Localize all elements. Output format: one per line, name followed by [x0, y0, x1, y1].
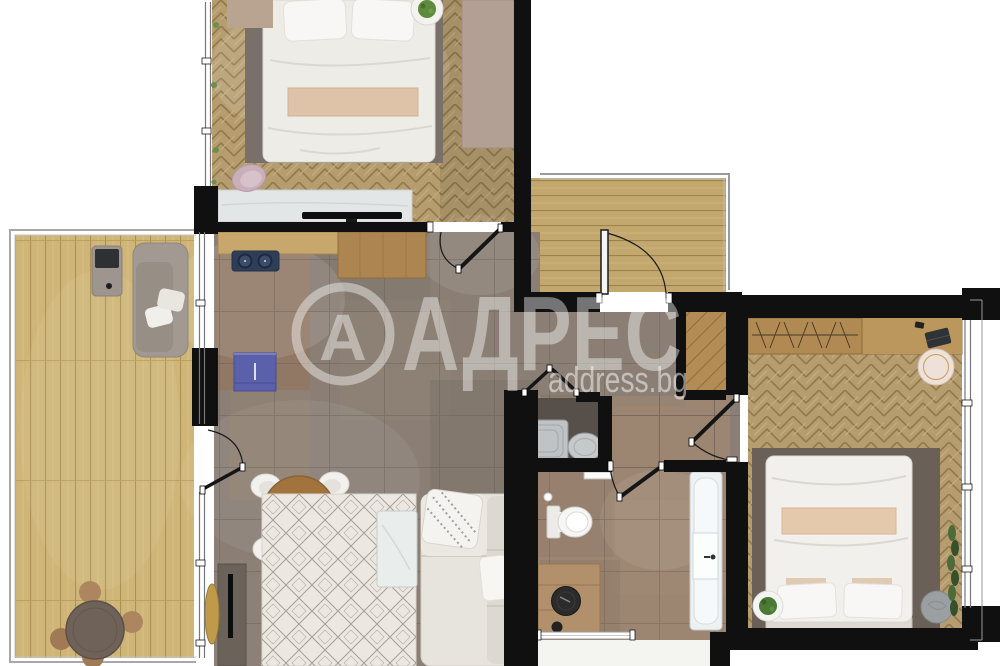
wall [684, 390, 726, 400]
bed-runner [288, 88, 418, 116]
terrace-sofa [133, 243, 188, 357]
bedroom1-dresser [218, 190, 412, 222]
floor-plan-image: А АДРЕС address.bg [0, 0, 1000, 666]
bedroom2-wardrobe-desk [748, 318, 962, 354]
sofa [421, 488, 513, 666]
pillow [351, 0, 415, 42]
coffee-table [377, 511, 417, 587]
wall [740, 295, 962, 318]
wall [515, 458, 605, 472]
bedroom2-bed [766, 456, 912, 632]
wall [962, 288, 1000, 320]
vanity-counter [538, 564, 600, 636]
black-vessel-sink [552, 587, 581, 616]
pillow [777, 583, 837, 620]
faucet-icon [711, 555, 716, 560]
desk-stool [918, 349, 954, 385]
wall [726, 628, 978, 650]
bedroom1-window-wall [202, 2, 211, 186]
kitchen-island [338, 232, 426, 278]
bedroom1-bed [263, 0, 435, 162]
toiletry-bottle [544, 493, 552, 501]
wall [504, 390, 538, 666]
wall [664, 460, 726, 472]
boiler [568, 433, 602, 461]
wall [196, 222, 430, 232]
accessory-jar [552, 622, 563, 633]
bedroom1-headboard-cabinet [227, 0, 273, 28]
tv-icon [228, 574, 233, 638]
terrace-side-table [92, 246, 122, 296]
brand-logo-letter: А [319, 300, 367, 374]
potted-plant [753, 591, 783, 621]
wall [710, 632, 730, 666]
blue-cabinet [234, 353, 276, 391]
bedroom2-window-wall [962, 300, 982, 640]
throw-blanket [421, 488, 484, 549]
wall [194, 186, 218, 234]
laptop-icon [95, 249, 119, 268]
cooktop [232, 251, 279, 271]
bed-runner [782, 508, 896, 534]
hall-closet-floor [684, 312, 726, 396]
pouf [921, 591, 953, 623]
wall [726, 462, 748, 632]
bedroom1-wardrobe [462, 0, 514, 148]
tv-console [218, 564, 246, 666]
shower-tray [538, 640, 710, 666]
wall [514, 0, 531, 312]
toilet [547, 506, 592, 538]
terrace-chair [79, 581, 101, 603]
bathtub [690, 472, 722, 630]
terrace-round-table [66, 601, 124, 659]
pillow [843, 583, 902, 619]
pillow [283, 0, 347, 42]
wall [598, 396, 612, 472]
site-watermark-text: address.bg [548, 359, 688, 400]
floor-plan-page: А АДРЕС address.bg [0, 0, 1000, 666]
towel-rail [584, 472, 612, 479]
tv-icon [302, 212, 402, 219]
basket [205, 584, 219, 644]
